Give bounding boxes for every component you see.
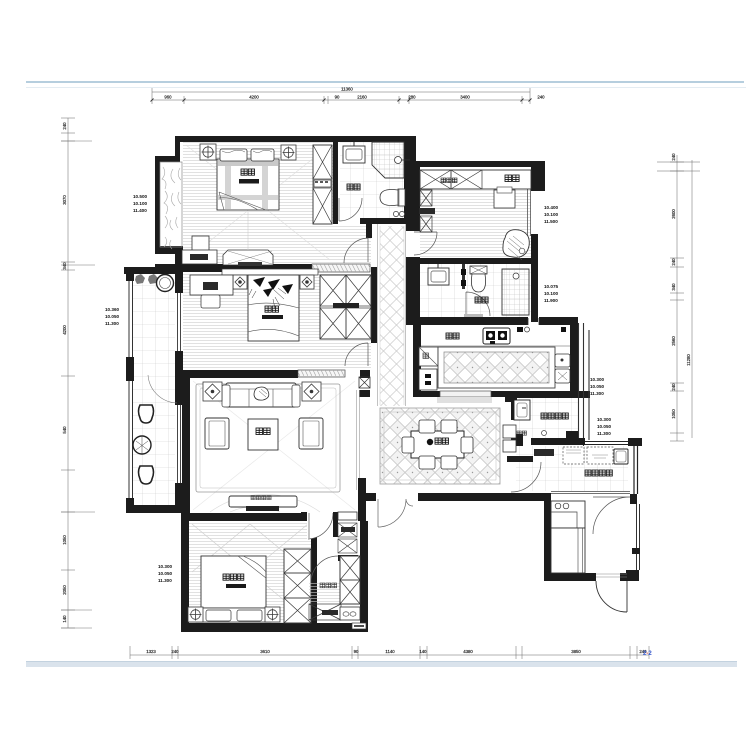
- svg-text:10.100: 10.100: [544, 212, 558, 217]
- svg-text:2050: 2050: [62, 585, 67, 595]
- svg-text:240: 240: [671, 258, 676, 266]
- svg-text:2560: 2560: [671, 336, 676, 346]
- svg-text:3850: 3850: [571, 649, 581, 654]
- svg-text:1050: 1050: [671, 409, 676, 419]
- svg-text:10.100: 10.100: [544, 291, 558, 296]
- svg-text:10.050: 10.050: [590, 384, 604, 389]
- svg-text:3070: 3070: [62, 195, 67, 205]
- svg-text:10.300: 10.300: [590, 377, 604, 382]
- svg-text:960: 960: [164, 95, 172, 100]
- svg-text:11.300: 11.300: [105, 321, 119, 326]
- svg-text:11.500: 11.500: [544, 219, 558, 224]
- svg-text:240: 240: [171, 649, 179, 654]
- svg-text:10.360: 10.360: [105, 307, 119, 312]
- svg-text:140: 140: [419, 649, 427, 654]
- svg-text:240: 240: [537, 95, 545, 100]
- svg-text:10.300: 10.300: [597, 417, 611, 422]
- svg-text:10.100: 10.100: [133, 201, 147, 206]
- svg-text:1140: 1140: [385, 649, 395, 654]
- svg-text:280: 280: [408, 95, 416, 100]
- svg-text:240: 240: [62, 122, 67, 130]
- svg-text:540: 540: [62, 426, 67, 434]
- svg-text:90: 90: [335, 95, 340, 100]
- svg-text:2600: 2600: [671, 209, 676, 219]
- svg-text:11360: 11360: [341, 87, 353, 92]
- svg-text:10.500: 10.500: [133, 194, 147, 199]
- svg-text:240: 240: [671, 383, 676, 391]
- svg-text:4380: 4380: [463, 649, 473, 654]
- svg-text:11.300: 11.300: [158, 578, 172, 583]
- svg-text:11.300: 11.300: [597, 431, 611, 436]
- svg-text:10.300: 10.300: [158, 564, 172, 569]
- svg-text:11.300: 11.300: [590, 391, 604, 396]
- svg-text:240: 240: [671, 153, 676, 161]
- svg-text:10.050: 10.050: [105, 314, 119, 319]
- svg-text:10.050: 10.050: [597, 424, 611, 429]
- svg-text:11.400: 11.400: [133, 208, 147, 213]
- svg-text:10.400: 10.400: [544, 205, 558, 210]
- svg-text:11.900: 11.900: [544, 298, 558, 303]
- svg-text:11280: 11280: [686, 354, 691, 366]
- svg-text:340: 340: [671, 283, 676, 291]
- svg-text:140: 140: [62, 615, 67, 623]
- svg-text:4200: 4200: [249, 95, 259, 100]
- svg-text:2-2: 2-2: [643, 651, 652, 657]
- svg-text:10.050: 10.050: [158, 571, 172, 576]
- svg-text:10.075: 10.075: [544, 284, 558, 289]
- svg-text:340: 340: [62, 262, 67, 270]
- svg-text:1050: 1050: [62, 535, 67, 545]
- svg-text:3400: 3400: [460, 95, 470, 100]
- svg-text:90: 90: [354, 649, 359, 654]
- svg-text:4200: 4200: [62, 325, 67, 335]
- svg-text:2160: 2160: [357, 95, 367, 100]
- svg-text:1323: 1323: [146, 649, 156, 654]
- svg-text:3610: 3610: [260, 649, 270, 654]
